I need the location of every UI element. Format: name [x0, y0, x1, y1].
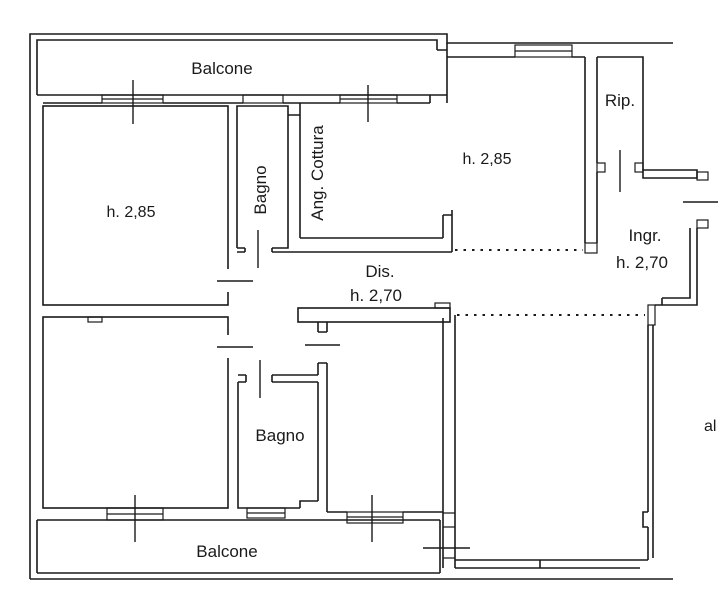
label-ingresso-height: h. 2,70: [616, 253, 668, 272]
floor-plan-canvas: Balcone h. 2,85 Bagno Ang. Cottura h. 2,…: [0, 0, 720, 600]
label-ang-cottura: Ang. Cottura: [308, 125, 327, 221]
window-above-bagno: [243, 95, 283, 103]
window-bagno-bottom: [247, 508, 285, 518]
label-disimpegno-height: h. 2,70: [350, 286, 402, 305]
label-balcone-top: Balcone: [191, 59, 252, 78]
entrance-door-jamb-bottom: [697, 220, 708, 228]
bedroom-bottom-left: [43, 317, 228, 508]
living-room: [447, 45, 597, 253]
window-living-top: [515, 45, 572, 57]
label-bagno-bottom: Bagno: [255, 426, 304, 445]
label-ingresso: Ingr.: [628, 226, 661, 245]
window-bottom-left: [107, 495, 163, 542]
room-bottom-right: [455, 305, 655, 568]
window-ang-cottura: [340, 85, 397, 122]
room-bottom-middle: [305, 318, 443, 568]
ripostiglio-room: [597, 57, 643, 192]
label-right-edge-text: al: [704, 418, 716, 435]
window-top-left: [102, 80, 163, 124]
corridor-walls: [298, 303, 450, 322]
label-balcone-bottom: Balcone: [196, 542, 257, 561]
label-living-room-height: h. 2,85: [463, 151, 512, 168]
label-ripostiglio: Rip.: [605, 91, 635, 110]
label-bagno-top: Bagno: [251, 165, 270, 214]
window-bottom-middle: [347, 495, 403, 542]
floor-plan-drawing: Balcone h. 2,85 Bagno Ang. Cottura h. 2,…: [0, 0, 720, 600]
label-disimpegno: Dis.: [365, 262, 394, 281]
outer-boundary: [30, 34, 673, 579]
label-bedroom-top-left-height: h. 2,85: [107, 204, 156, 221]
entrance-door-jamb-top: [697, 172, 708, 180]
